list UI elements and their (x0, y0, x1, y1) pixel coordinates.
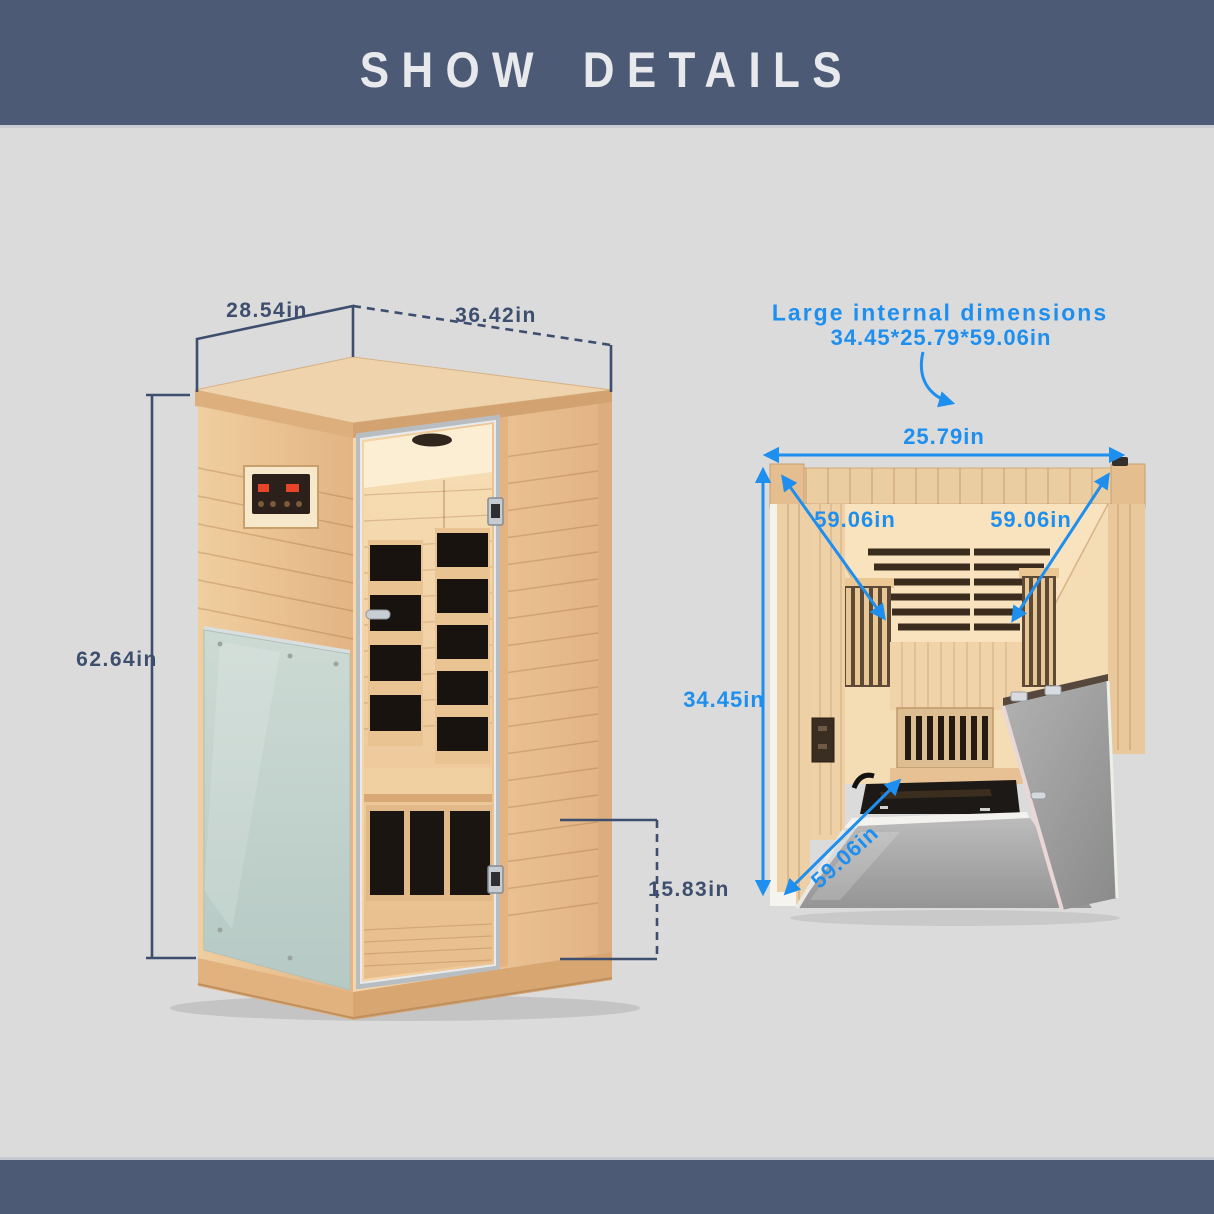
header-divider (0, 125, 1214, 128)
right-wall (1108, 504, 1145, 754)
back-wall-band (770, 457, 1145, 508)
wall-diagonal-left-label: 59.06in (814, 507, 896, 533)
corner-block-right (1111, 464, 1145, 508)
page-title: SHOW DETAILS (360, 41, 854, 99)
base-height-dimension-label: 15.83in (648, 878, 730, 902)
corner-post (598, 402, 612, 954)
height-dimension-label: 62.64in (76, 648, 158, 672)
door-hinge-b (1045, 686, 1061, 695)
internal-depth-label: 34.45in (683, 687, 765, 713)
internal-dimensions-value: 34.45*25.79*59.06in (831, 325, 1052, 351)
ceiling-vent (412, 434, 452, 447)
internal-dimensions-title: Large internal dimensions (772, 300, 1108, 327)
door-handle (1031, 792, 1046, 799)
interior-back-wall (890, 642, 1022, 710)
bench (362, 768, 494, 901)
right-railing (1019, 568, 1059, 687)
wall-diagonal-right-label: 59.06in (990, 507, 1072, 533)
sauna-side-panel (198, 406, 353, 992)
internal-width-label: 25.79in (903, 424, 985, 450)
depth-dimension-label: 28.54in (226, 299, 308, 323)
control-box (812, 718, 834, 762)
header-band: SHOW DETAILS (0, 0, 1214, 125)
door-pivot-hardware (1112, 457, 1128, 466)
height-dimension-line (146, 395, 196, 958)
floor-shadow (790, 910, 1120, 926)
left-wall (770, 504, 810, 906)
frosted-glass-panel (204, 626, 350, 990)
door-hinge-a (1011, 692, 1027, 701)
sauna-interior-view (362, 413, 494, 979)
bench-heater (897, 708, 993, 768)
sauna-exterior-illustration (140, 290, 720, 1030)
footer-band (0, 1160, 1214, 1214)
width-dimension-label: 36.42in (455, 304, 537, 328)
callout-curved-arrow (921, 352, 952, 403)
control-panel (244, 466, 318, 528)
door-handle (366, 610, 390, 619)
